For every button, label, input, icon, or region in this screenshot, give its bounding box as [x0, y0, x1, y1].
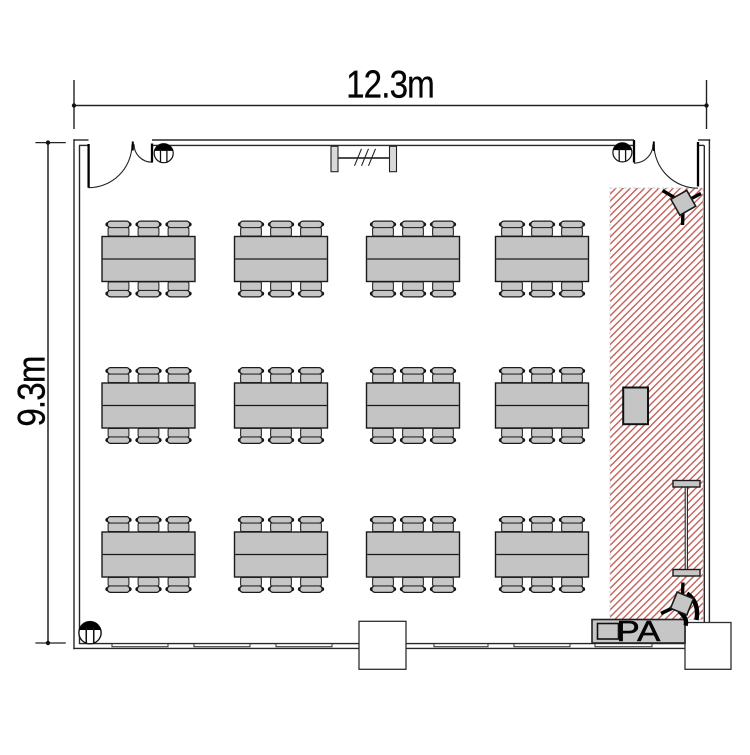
svg-text:PA: PA	[617, 615, 662, 647]
svg-text:12.3m: 12.3m	[346, 62, 434, 106]
svg-text:9.3m: 9.3m	[9, 356, 53, 426]
